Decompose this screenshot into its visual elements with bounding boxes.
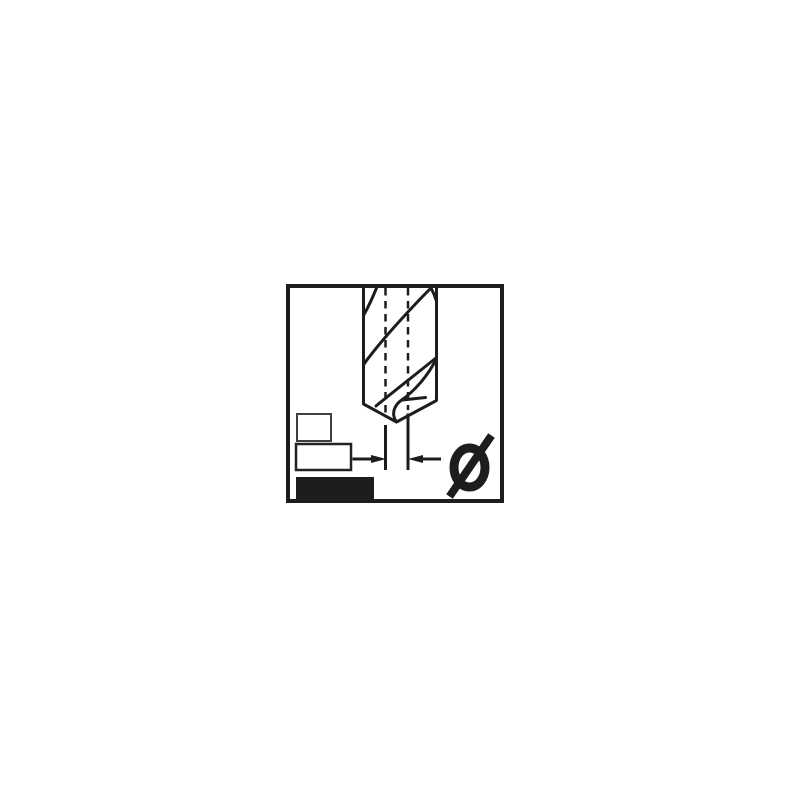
- dimension-arrows: [353, 455, 442, 463]
- pictogram-frame: Ø: [286, 284, 504, 503]
- page-canvas: Ø: [0, 0, 800, 800]
- indicator-box-filled: [296, 477, 374, 503]
- diameter-symbol-icon: [450, 436, 492, 497]
- indicator-box-medium: [296, 444, 351, 470]
- drill-flute-lines: [364, 288, 437, 422]
- drill-bit-diagram: [290, 288, 508, 507]
- indicator-box-small: [297, 414, 331, 441]
